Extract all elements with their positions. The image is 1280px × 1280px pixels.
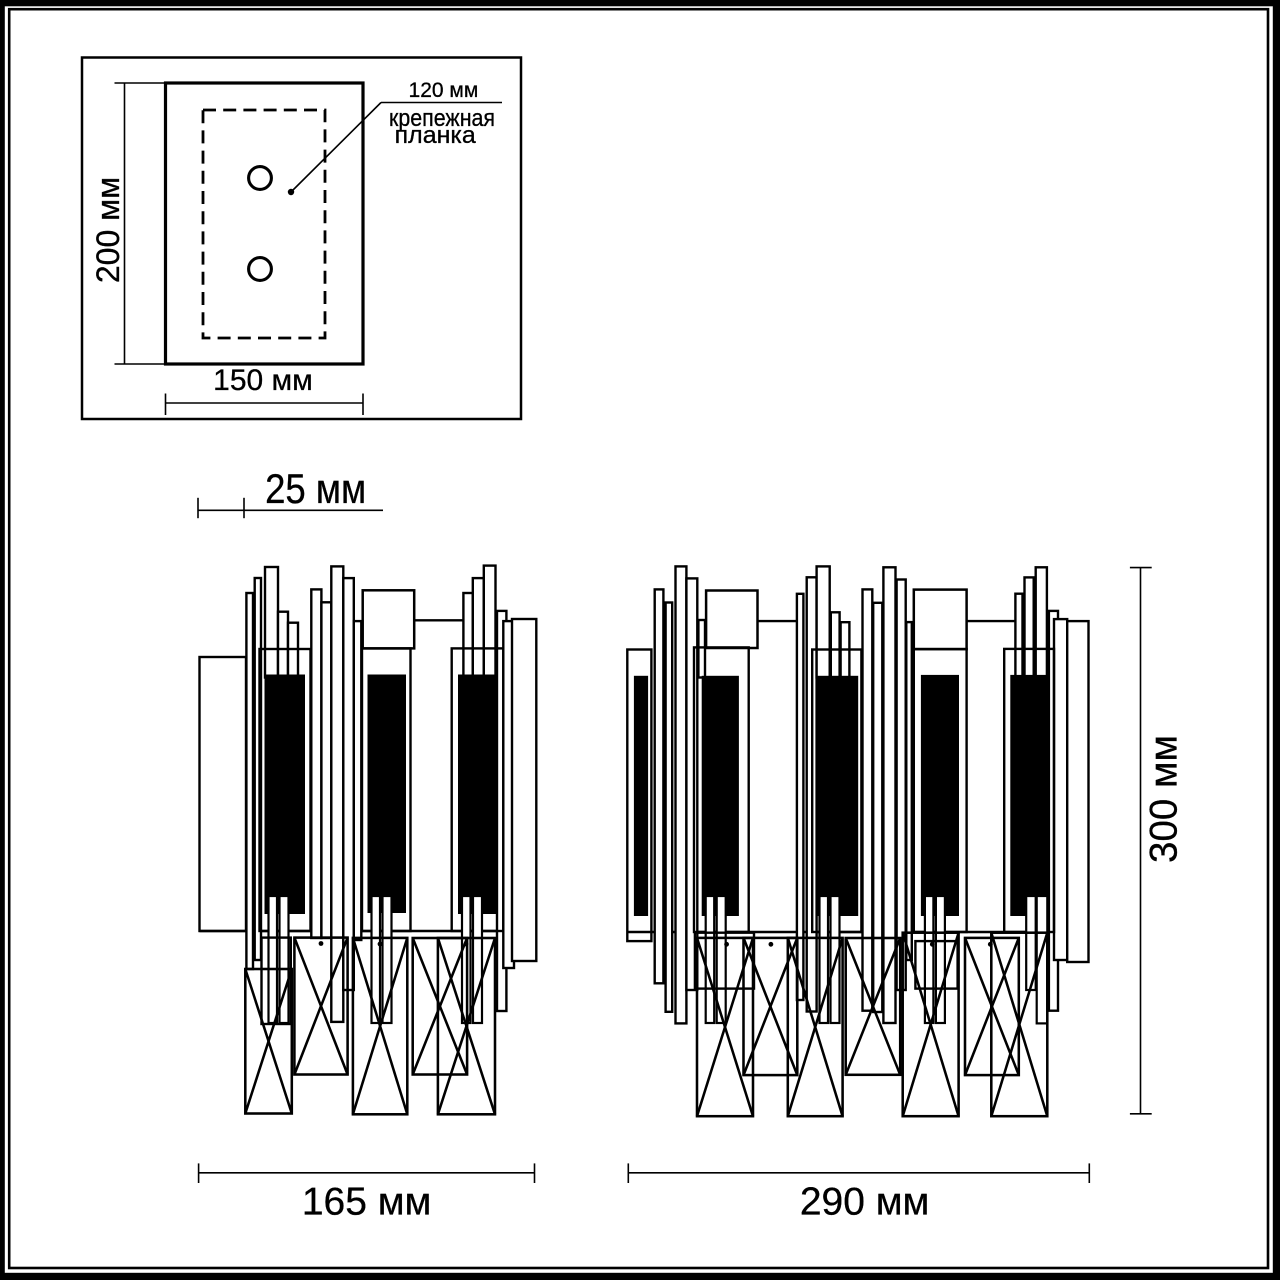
svg-text:165 мм: 165 мм [302, 1180, 432, 1223]
svg-text:290 мм: 290 мм [800, 1180, 930, 1223]
svg-text:200 мм: 200 мм [90, 177, 126, 283]
svg-text:300 мм: 300 мм [1143, 735, 1186, 863]
svg-text:120 мм: 120 мм [409, 79, 479, 102]
svg-text:планка: планка [395, 122, 477, 149]
svg-text:150 мм: 150 мм [213, 364, 313, 397]
svg-text:25 мм: 25 мм [265, 465, 366, 512]
